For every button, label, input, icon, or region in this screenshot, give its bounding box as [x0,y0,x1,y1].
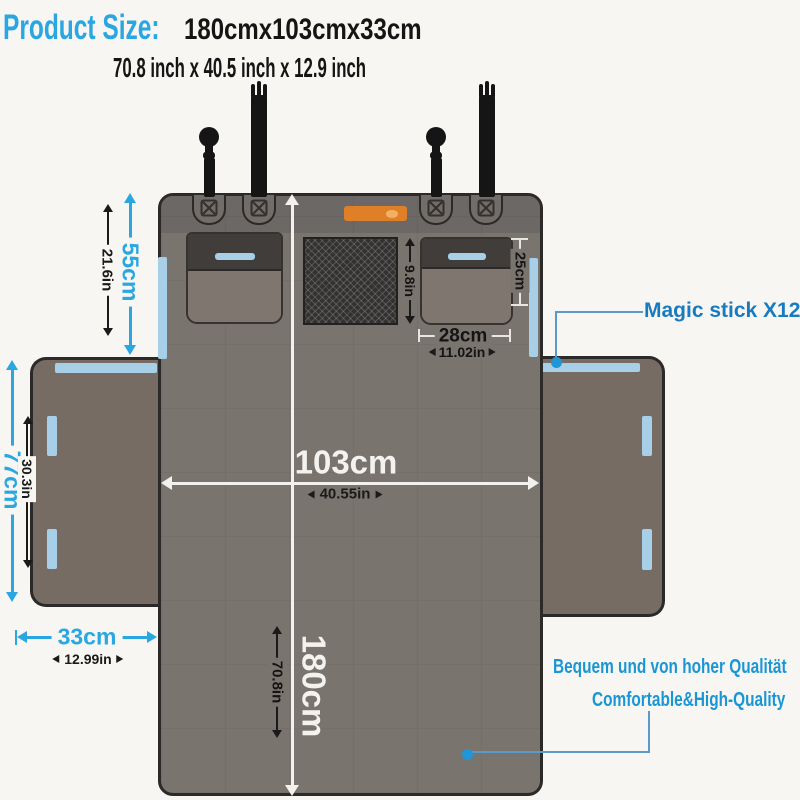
buckle-slot-icon [427,199,445,217]
callout-dot [551,357,562,368]
dim-label-40in-text: 40.55in [320,487,371,502]
quality-label-en: Comfortable&High-Quality [592,689,785,712]
dim-label-21in: 21.6in [98,245,117,296]
dim-label-13in: 12.99in [52,652,123,666]
callout-line [555,312,557,360]
velcro-strip [529,258,538,357]
pocket-flap [188,234,281,271]
size-cm-label: 180cmx103cmx33cm [184,13,422,47]
velcro-strip [642,529,652,570]
dim-label-180cm: 180cm [298,635,331,738]
dim-tick [509,329,511,342]
arrow-right-icon [488,348,495,356]
arrow-left-icon [429,348,436,356]
pocket-body [422,269,511,323]
dim-line-180cm [291,204,294,786]
callout-line [648,711,650,753]
arrowhead [124,345,136,355]
strap-slot [469,195,503,225]
dim-label-25cm: 25cm [511,249,530,293]
buckle-strap [479,95,495,197]
dim-label-11in-text: 11.02in [439,345,486,359]
callout-line [472,751,650,753]
arrow-right-icon [375,490,382,498]
arrowhead [147,631,157,643]
callout-dot [462,749,473,760]
arrow-left-icon [52,655,59,663]
arrowhead [528,476,539,490]
dim-label-13in-text: 12.99in [64,652,111,666]
velcro-strip [215,253,255,260]
arrowhead [405,316,415,324]
right-side-flap [543,356,665,617]
arrow-right-icon [117,655,124,663]
arrowhead [23,560,33,568]
arrow-left-icon [308,490,315,498]
dim-label-33cm: 33cm [52,624,123,651]
buckle-slot-icon [200,199,218,217]
dim-label-9in: 9.8in [401,262,419,300]
buckle-strap [485,81,489,96]
strap-slot [419,195,453,225]
dim-label-28cm: 28cm [435,327,492,346]
ball-strap [426,127,446,147]
buckle-slot-icon [477,199,495,217]
ball-strap [199,127,219,147]
brand-logo-mark-icon [386,210,398,218]
product-size-diagram: Product Size: 180cmx103cmx33cm 70.8 inch… [0,0,800,800]
velcro-strip [47,529,57,569]
left-side-flap [30,357,158,607]
dim-label-55cm: 55cm [116,238,145,307]
velcro-strip [55,363,157,373]
buckle-slot-icon [250,199,268,217]
velcro-strip [47,416,57,456]
arrowhead [23,416,33,424]
velcro-strip [642,416,652,456]
quality-label-de: Bequem und von hoher Qualität [553,656,787,679]
strap-slot [242,195,276,225]
dim-label-40in: 40.55in [308,487,383,502]
magic-stick-label: Magic stick X12 [644,299,800,323]
ball-strap [204,158,215,197]
strap-slot [192,195,226,225]
right-storage-pocket [420,237,513,325]
arrowhead [103,328,113,336]
arrowhead [6,592,18,602]
brand-logo [344,206,407,221]
size-inch-label: 70.8 inch x 40.5 inch x 12.9 inch [113,52,366,84]
mesh-pocket [303,237,398,325]
left-storage-pocket [186,232,283,324]
dim-label-103cm: 103cm [295,446,398,479]
page-title: Product Size: [3,8,160,48]
callout-line [555,311,643,313]
dim-label-30in: 30.3in [18,456,36,502]
arrowhead [285,785,299,796]
dim-label-70in: 70.8in [268,658,287,707]
buckle-strap [251,95,267,197]
arrowhead [272,730,282,738]
dim-tick [511,304,528,306]
ball-strap [431,158,442,197]
velcro-strip [158,257,167,359]
buckle-strap [257,81,261,96]
velcro-strip [448,253,486,260]
dim-label-11in: 11.02in [429,345,496,359]
pocket-body [188,271,281,322]
pocket-flap [422,239,511,269]
